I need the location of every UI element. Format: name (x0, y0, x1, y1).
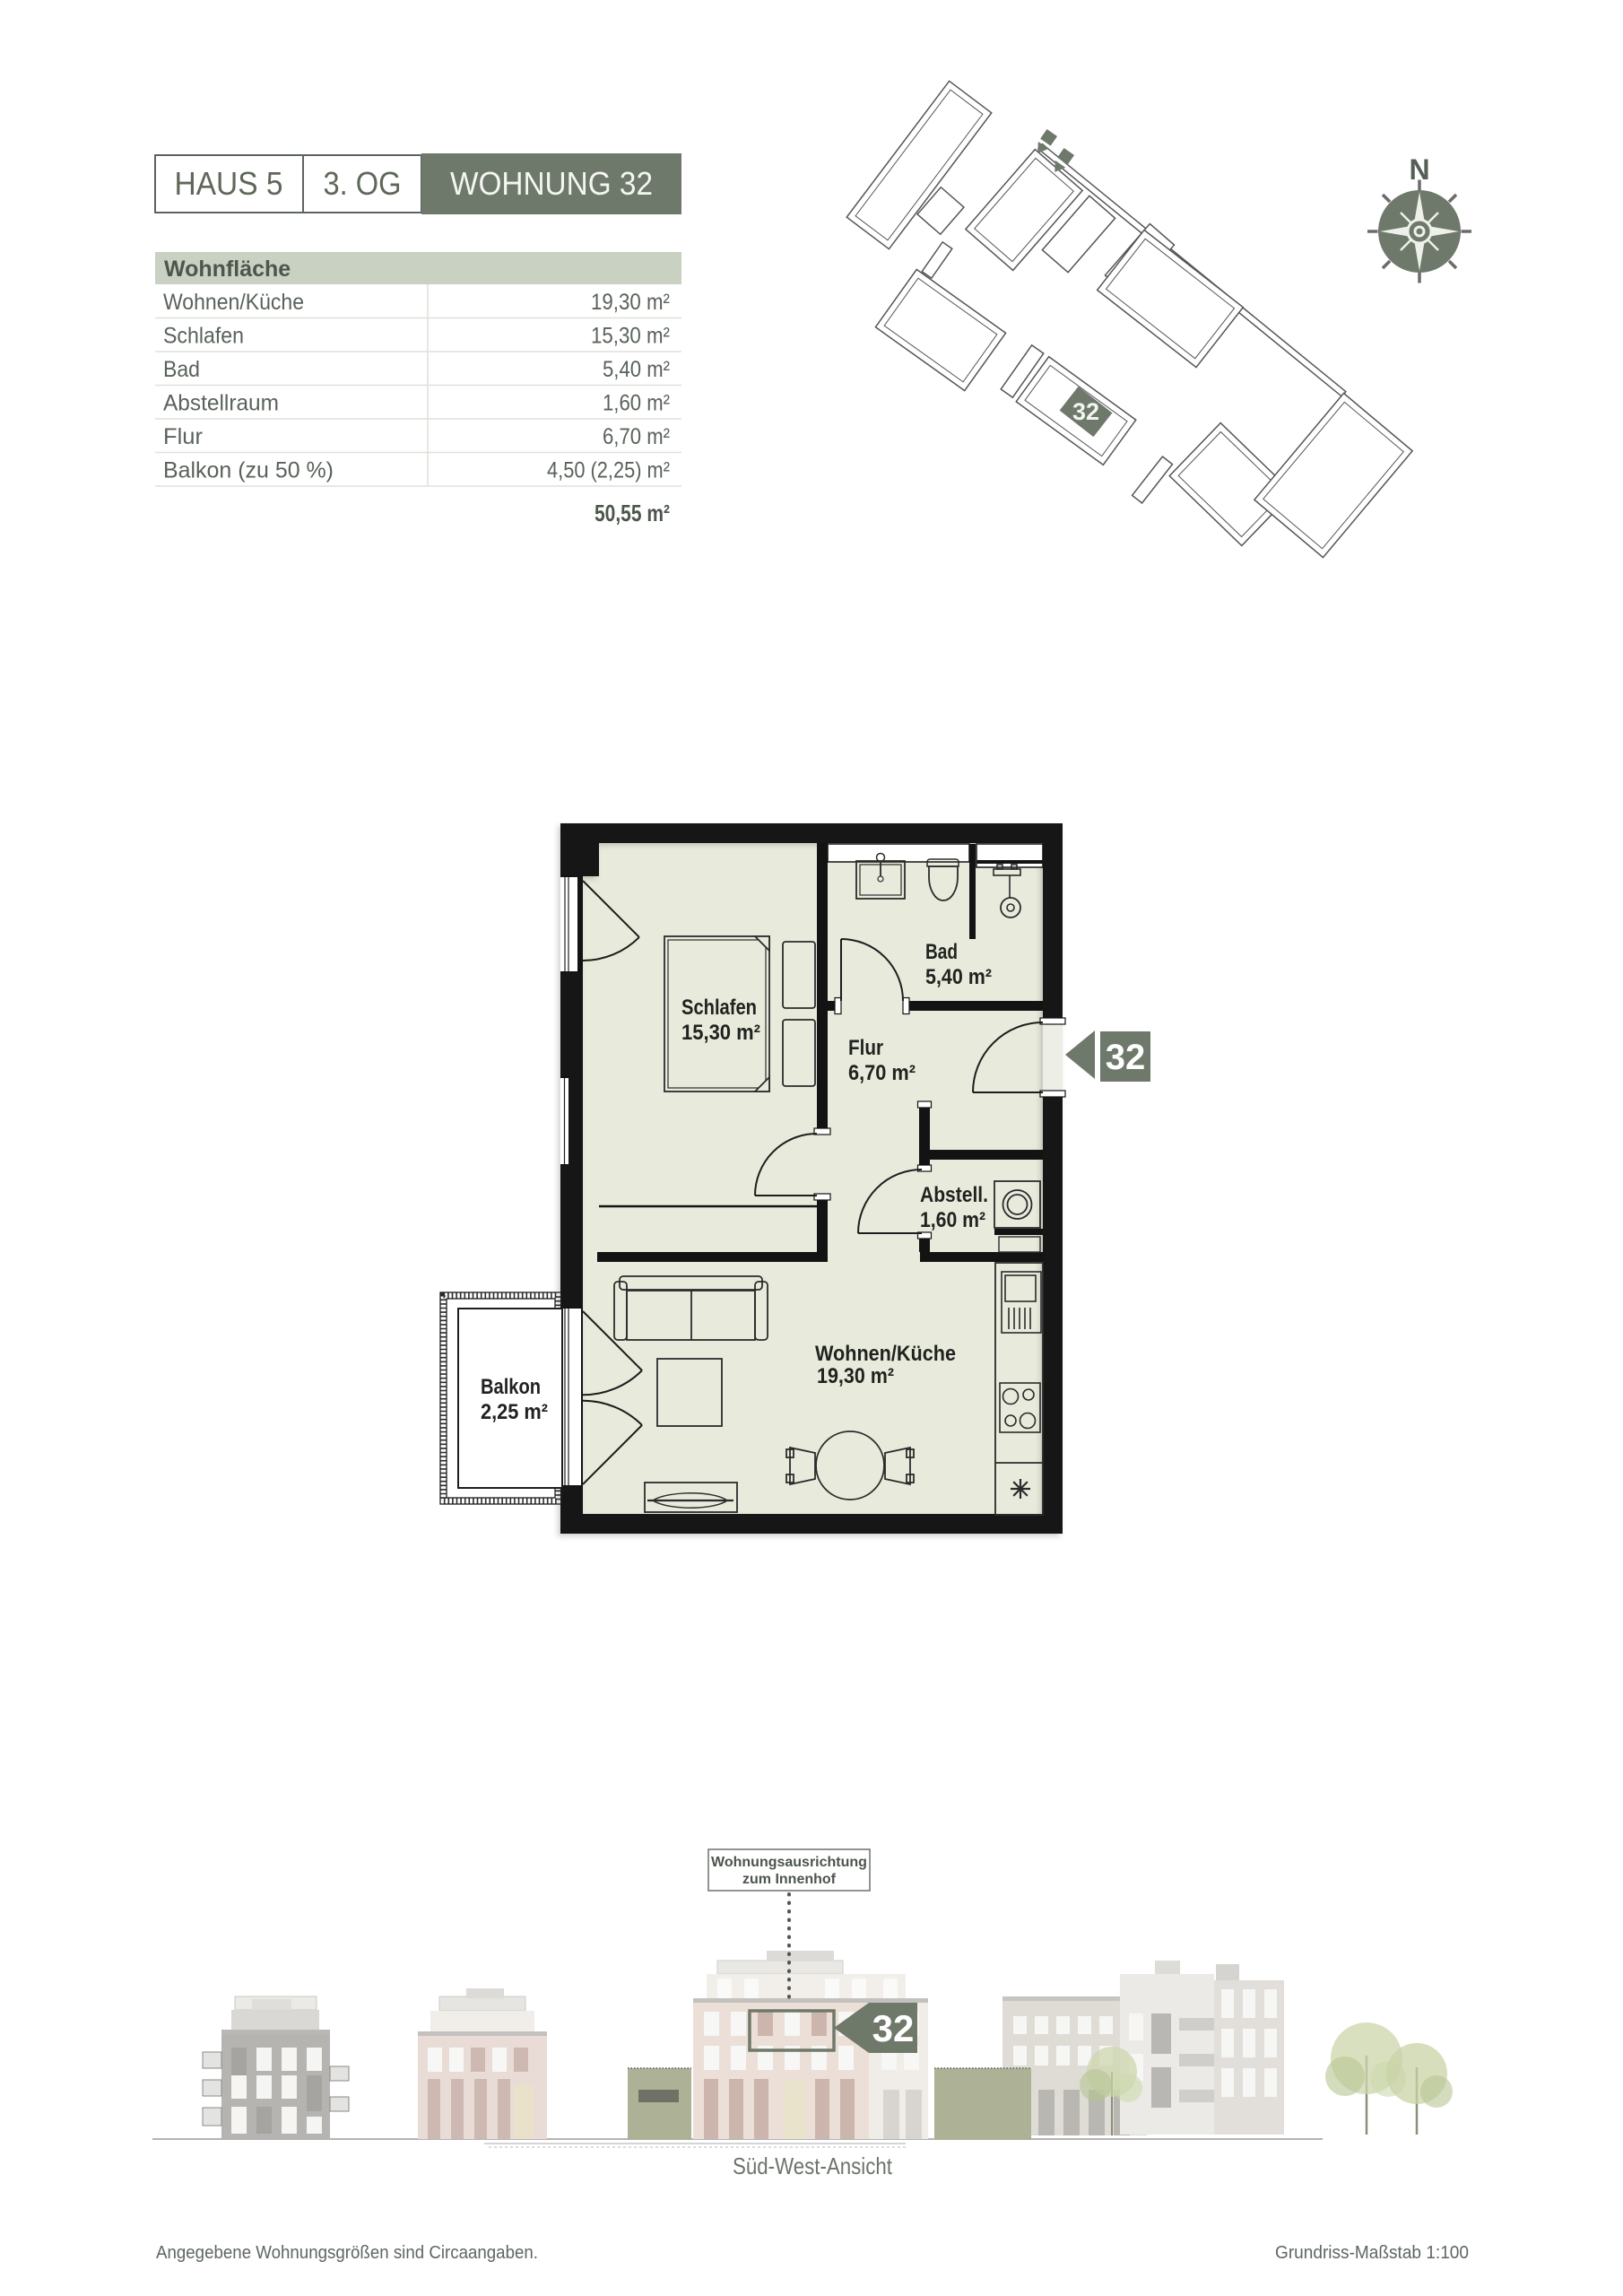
svg-text:Wohnen/Küche: Wohnen/Küche (815, 1342, 956, 1366)
svg-text:6,70 m²: 6,70 m² (603, 424, 670, 449)
svg-text:Schlafen: Schlafen (163, 324, 244, 349)
svg-text:2,25 m²: 2,25 m² (481, 1400, 548, 1424)
svg-text:5,40 m²: 5,40 m² (925, 965, 992, 989)
svg-text:Abstell.: Abstell. (920, 1183, 988, 1207)
svg-text:6,70 m²: 6,70 m² (848, 1061, 916, 1085)
svg-text:Wohnungsausrichtung: Wohnungsausrichtung (711, 1855, 867, 1870)
svg-text:5,40 m²: 5,40 m² (603, 357, 670, 382)
svg-text:32: 32 (1072, 398, 1099, 425)
svg-text:Süd-West-Ansicht: Süd-West-Ansicht (733, 2152, 893, 2179)
svg-text:32: 32 (872, 2007, 915, 2049)
svg-text:Flur: Flur (848, 1036, 883, 1060)
svg-text:Bad: Bad (163, 357, 200, 382)
svg-text:4,50 (2,25) m²: 4,50 (2,25) m² (547, 458, 670, 483)
svg-text:Wohnen/Küche: Wohnen/Küche (163, 290, 304, 315)
svg-text:Balkon: Balkon (481, 1375, 541, 1399)
svg-text:50,55 m²: 50,55 m² (595, 500, 670, 526)
svg-text:Balkon (zu 50 %): Balkon (zu 50 %) (163, 458, 334, 483)
svg-text:1,60 m²: 1,60 m² (920, 1208, 985, 1232)
svg-text:15,30 m²: 15,30 m² (591, 324, 670, 349)
svg-text:19,30 m²: 19,30 m² (817, 1364, 894, 1388)
svg-text:15,30 m²: 15,30 m² (681, 1021, 760, 1045)
svg-text:zum Innenhof: zum Innenhof (742, 1872, 837, 1887)
svg-text:32: 32 (1106, 1038, 1146, 1077)
svg-text:HAUS 5: HAUS 5 (175, 165, 283, 202)
svg-text:WOHNUNG 32: WOHNUNG 32 (450, 165, 653, 202)
svg-text:Bad: Bad (925, 940, 958, 964)
svg-text:Flur: Flur (163, 424, 203, 449)
svg-text:Schlafen: Schlafen (681, 996, 757, 1020)
svg-text:Abstellraum: Abstellraum (163, 391, 279, 416)
svg-text:3. OG: 3. OG (324, 165, 402, 202)
svg-text:Angegebene Wohnungsgrößen sind: Angegebene Wohnungsgrößen sind Circaanga… (156, 2243, 538, 2263)
svg-text:19,30 m²: 19,30 m² (591, 290, 670, 315)
svg-text:Wohnfläche: Wohnfläche (164, 257, 291, 282)
svg-text:1,60 m²: 1,60 m² (603, 391, 670, 416)
svg-text:Grundriss-Maßstab 1:100: Grundriss-Maßstab 1:100 (1275, 2243, 1469, 2263)
